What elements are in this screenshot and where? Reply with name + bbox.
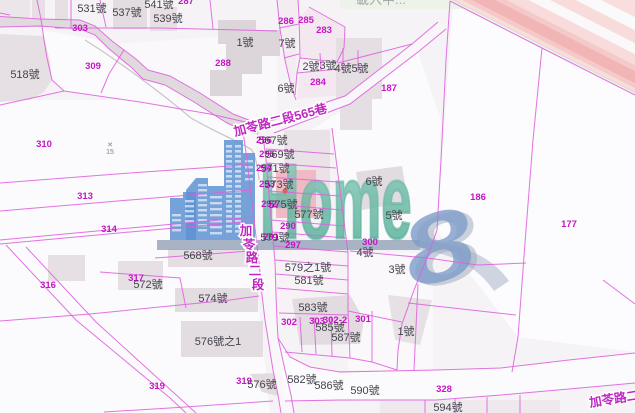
svg-text:572號: 572號 bbox=[133, 278, 162, 291]
svg-text:15: 15 bbox=[106, 149, 114, 156]
svg-text:314: 314 bbox=[101, 224, 118, 235]
svg-text:568號: 568號 bbox=[183, 249, 212, 262]
svg-text:309: 309 bbox=[85, 61, 101, 72]
svg-text:316: 316 bbox=[40, 280, 56, 291]
svg-text:301: 301 bbox=[355, 314, 372, 325]
svg-text:303: 303 bbox=[72, 23, 88, 34]
svg-text:5號: 5號 bbox=[351, 62, 368, 75]
svg-text:576號之1: 576號之1 bbox=[195, 334, 241, 348]
svg-text:285: 285 bbox=[298, 15, 315, 26]
svg-text:苓: 苓 bbox=[242, 237, 256, 252]
svg-text:路: 路 bbox=[246, 250, 259, 265]
svg-text:537號: 537號 bbox=[112, 6, 141, 19]
svg-text:577號: 577號 bbox=[294, 208, 323, 221]
svg-text:段: 段 bbox=[252, 277, 265, 292]
svg-text:5號: 5號 bbox=[385, 209, 402, 222]
svg-text:569號: 569號 bbox=[265, 148, 294, 161]
svg-text:1號: 1號 bbox=[236, 36, 253, 49]
svg-text:579之1號: 579之1號 bbox=[285, 260, 331, 274]
svg-text:2號: 2號 bbox=[302, 60, 319, 73]
svg-text:594號: 594號 bbox=[433, 401, 462, 413]
svg-text:541號: 541號 bbox=[144, 0, 173, 11]
svg-text:177: 177 bbox=[561, 219, 577, 230]
svg-text:302: 302 bbox=[281, 317, 297, 328]
svg-text:587號: 587號 bbox=[331, 331, 360, 344]
svg-text:186: 186 bbox=[470, 192, 486, 203]
svg-text:286: 286 bbox=[278, 16, 294, 27]
svg-text:310: 310 bbox=[36, 139, 52, 150]
svg-text:571號: 571號 bbox=[260, 162, 289, 175]
svg-text:590號: 590號 bbox=[350, 384, 379, 397]
svg-text:583號: 583號 bbox=[298, 301, 327, 314]
svg-text:328: 328 bbox=[436, 384, 452, 395]
svg-text:1號: 1號 bbox=[397, 325, 414, 338]
svg-text:290: 290 bbox=[280, 221, 296, 232]
svg-text:4號: 4號 bbox=[334, 62, 351, 75]
svg-text:287: 287 bbox=[178, 0, 194, 7]
svg-text:574號: 574號 bbox=[198, 292, 227, 305]
svg-text:3號: 3號 bbox=[388, 263, 405, 276]
svg-text:✕: ✕ bbox=[107, 142, 113, 149]
svg-text:518號: 518號 bbox=[10, 68, 39, 81]
svg-text:284: 284 bbox=[310, 77, 327, 88]
svg-text:319: 319 bbox=[149, 381, 165, 392]
svg-text:313: 313 bbox=[77, 191, 93, 202]
svg-text:575號: 575號 bbox=[268, 198, 297, 211]
svg-text:531號: 531號 bbox=[77, 2, 106, 15]
svg-text:582號: 582號 bbox=[287, 373, 316, 386]
svg-text:二: 二 bbox=[249, 264, 262, 278]
svg-text:581號: 581號 bbox=[294, 274, 323, 287]
svg-text:187: 187 bbox=[381, 83, 397, 94]
svg-text:288: 288 bbox=[215, 58, 231, 69]
svg-text:6號: 6號 bbox=[277, 82, 294, 95]
svg-text:283: 283 bbox=[316, 25, 332, 36]
svg-text:7號: 7號 bbox=[278, 37, 295, 50]
svg-text:573號: 573號 bbox=[264, 178, 293, 191]
svg-text:加: 加 bbox=[239, 223, 253, 238]
svg-text:6號: 6號 bbox=[365, 175, 382, 188]
svg-text:586號: 586號 bbox=[314, 379, 343, 392]
svg-text:4號: 4號 bbox=[356, 246, 373, 259]
svg-text:539號: 539號 bbox=[153, 12, 182, 25]
svg-text:567號: 567號 bbox=[258, 134, 287, 147]
svg-text:載入中...: 載入中... bbox=[356, 0, 406, 7]
svg-text:576號: 576號 bbox=[247, 378, 276, 391]
svg-text:579號: 579號 bbox=[260, 231, 289, 244]
